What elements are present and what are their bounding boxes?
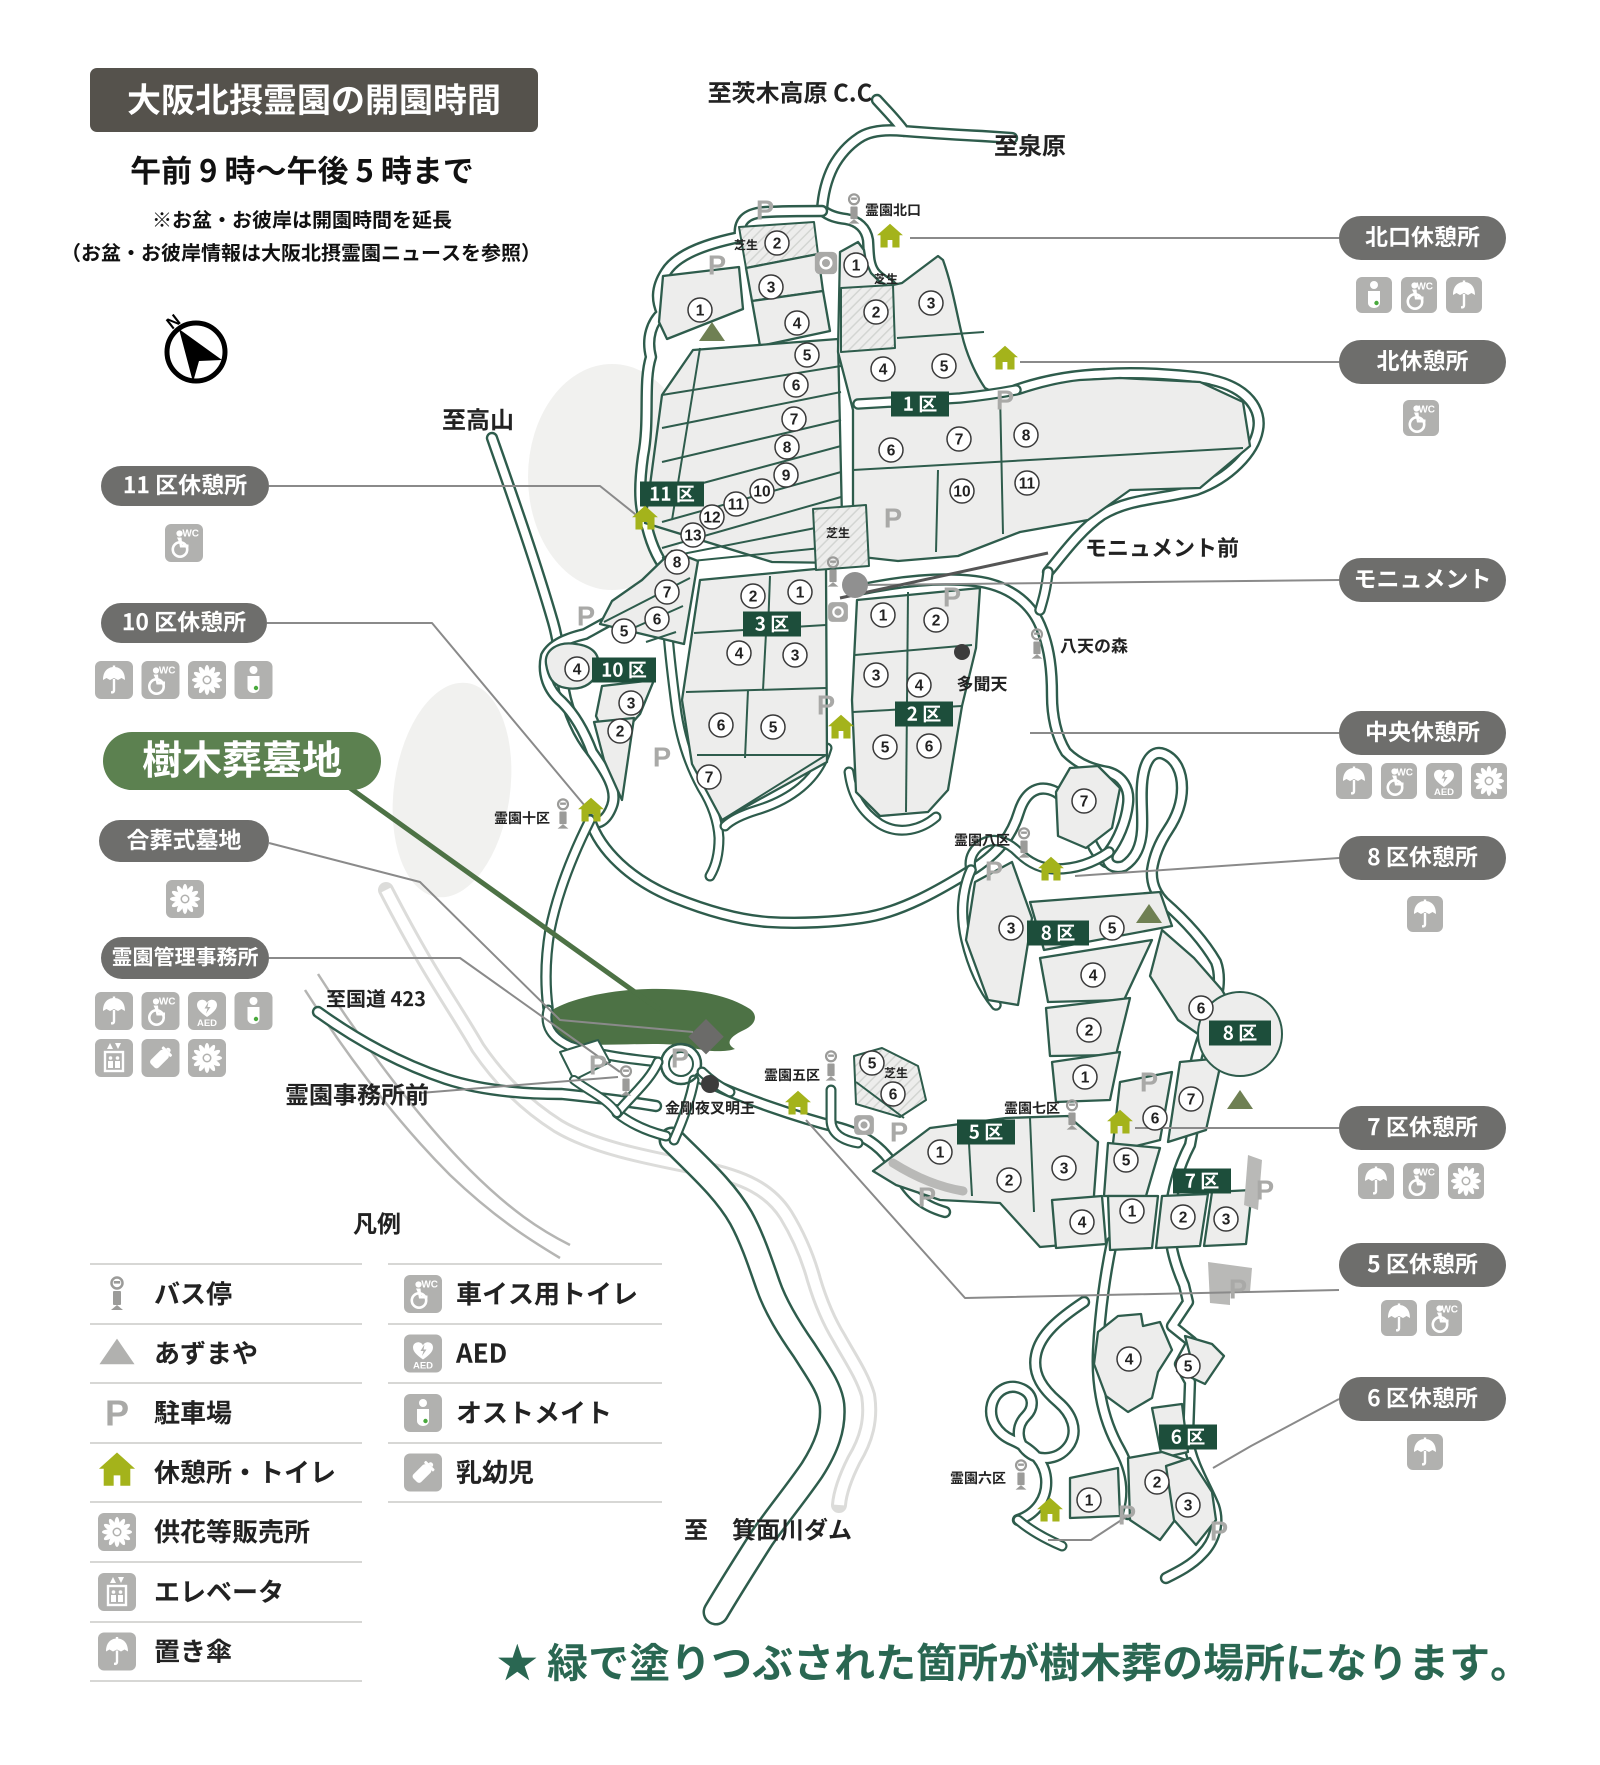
svg-text:WC: WC — [1441, 1305, 1458, 1316]
svg-text:3: 3 — [627, 696, 636, 713]
svg-text:WC: WC — [1418, 1168, 1435, 1179]
svg-text:3: 3 — [1184, 1498, 1193, 1515]
svg-text:4: 4 — [1078, 1215, 1087, 1232]
svg-text:WC: WC — [182, 529, 199, 540]
svg-text:2: 2 — [1085, 1023, 1094, 1040]
svg-text:2: 2 — [1005, 1173, 1014, 1190]
svg-text:P: P — [105, 1392, 129, 1433]
svg-text:8: 8 — [1022, 428, 1031, 445]
svg-text:12: 12 — [703, 510, 720, 527]
svg-text:11: 11 — [728, 497, 745, 514]
svg-text:6: 6 — [653, 612, 662, 629]
svg-text:6: 6 — [717, 718, 726, 735]
svg-text:4: 4 — [735, 646, 744, 663]
svg-text:3: 3 — [767, 280, 776, 297]
svg-text:P: P — [671, 1042, 689, 1073]
svg-text:P: P — [756, 194, 774, 225]
svg-text:6: 6 — [925, 739, 934, 756]
svg-text:13: 13 — [684, 528, 702, 545]
svg-text:P: P — [817, 689, 835, 720]
svg-text:1: 1 — [1081, 1070, 1090, 1087]
svg-text:5: 5 — [1108, 921, 1117, 938]
svg-text:P: P — [577, 600, 595, 631]
svg-text:2: 2 — [616, 724, 625, 741]
svg-text:7: 7 — [1080, 794, 1089, 811]
svg-text:2: 2 — [872, 305, 881, 322]
svg-text:7: 7 — [705, 770, 714, 787]
svg-text:1: 1 — [936, 1145, 945, 1162]
svg-text:P: P — [890, 1116, 908, 1147]
svg-text:4: 4 — [793, 316, 802, 333]
svg-text:P: P — [996, 384, 1014, 415]
svg-text:3: 3 — [1007, 921, 1016, 938]
svg-text:6: 6 — [887, 443, 896, 460]
svg-text:9: 9 — [782, 468, 791, 485]
svg-text:AED: AED — [413, 1361, 433, 1372]
svg-text:5: 5 — [940, 359, 949, 376]
svg-text:2: 2 — [773, 236, 782, 253]
svg-text:AED: AED — [1434, 787, 1454, 798]
svg-text:2: 2 — [749, 589, 758, 606]
svg-text:P: P — [943, 581, 961, 612]
svg-text:11: 11 — [1019, 476, 1036, 493]
svg-text:2: 2 — [1179, 1210, 1188, 1227]
svg-text:6: 6 — [1197, 1001, 1206, 1018]
svg-text:P: P — [1118, 1499, 1136, 1530]
svg-text:6: 6 — [792, 378, 801, 395]
svg-text:P: P — [1256, 1174, 1274, 1205]
svg-text:5: 5 — [803, 348, 812, 365]
svg-text:2: 2 — [932, 613, 941, 630]
svg-text:7: 7 — [790, 412, 799, 429]
svg-text:1: 1 — [696, 303, 705, 320]
svg-text:P: P — [918, 1181, 936, 1212]
svg-text:7: 7 — [955, 432, 964, 449]
svg-text:1: 1 — [852, 258, 861, 275]
svg-text:WC: WC — [421, 1280, 438, 1291]
svg-text:1: 1 — [879, 608, 888, 625]
svg-text:7: 7 — [1187, 1092, 1196, 1109]
svg-text:5: 5 — [620, 624, 629, 641]
svg-text:3: 3 — [872, 668, 881, 685]
svg-text:WC: WC — [1396, 768, 1413, 779]
svg-text:10: 10 — [953, 484, 970, 501]
svg-text:8: 8 — [783, 440, 792, 457]
svg-text:4: 4 — [915, 678, 924, 695]
svg-text:P: P — [589, 1049, 607, 1080]
svg-text:5: 5 — [769, 720, 778, 737]
svg-text:8: 8 — [673, 555, 682, 572]
svg-text:4: 4 — [879, 362, 888, 379]
svg-text:WC: WC — [159, 997, 176, 1008]
svg-text:4: 4 — [1125, 1352, 1134, 1369]
svg-text:6: 6 — [889, 1087, 898, 1104]
svg-text:4: 4 — [573, 662, 582, 679]
svg-text:5: 5 — [1122, 1153, 1131, 1170]
svg-text:WC: WC — [1416, 282, 1433, 293]
svg-text:2: 2 — [1153, 1475, 1162, 1492]
svg-text:P: P — [884, 502, 902, 533]
svg-text:P: P — [708, 249, 726, 280]
svg-text:4: 4 — [1089, 968, 1098, 985]
svg-text:5: 5 — [881, 740, 890, 757]
svg-text:3: 3 — [1060, 1161, 1069, 1178]
svg-text:3: 3 — [1222, 1212, 1231, 1229]
svg-text:WC: WC — [1418, 405, 1435, 416]
svg-text:3: 3 — [791, 648, 800, 665]
svg-text:WC: WC — [159, 666, 176, 677]
svg-text:P: P — [1140, 1066, 1158, 1097]
svg-text:5: 5 — [868, 1056, 877, 1073]
svg-text:P: P — [985, 855, 1003, 886]
svg-text:7: 7 — [663, 585, 672, 602]
svg-text:1: 1 — [1128, 1204, 1137, 1221]
svg-text:3: 3 — [927, 296, 936, 313]
svg-text:P: P — [1210, 1515, 1228, 1546]
svg-text:1: 1 — [796, 585, 805, 602]
svg-text:1: 1 — [1085, 1493, 1094, 1510]
svg-text:P: P — [653, 741, 671, 772]
svg-text:10: 10 — [753, 484, 770, 501]
svg-text:AED: AED — [197, 1018, 217, 1029]
svg-text:P: P — [1229, 1273, 1247, 1304]
svg-text:5: 5 — [1184, 1359, 1193, 1376]
svg-text:6: 6 — [1151, 1111, 1160, 1128]
